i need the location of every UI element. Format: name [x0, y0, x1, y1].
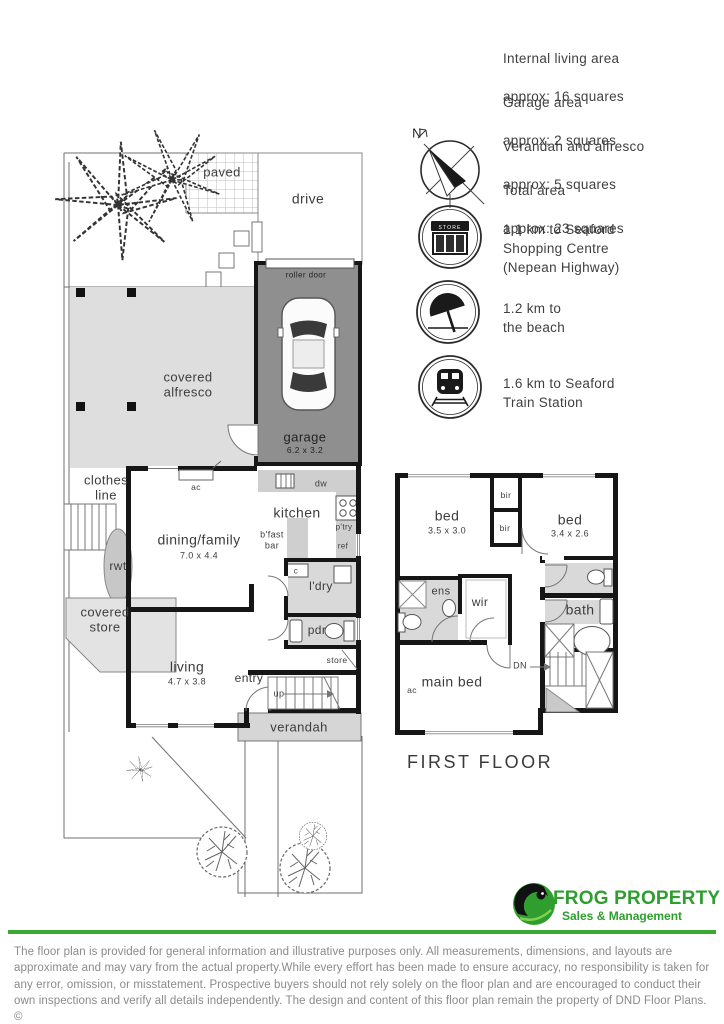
company-tagline: Sales & Management [562, 909, 682, 923]
room-label-covered-alfresco: covered alfresco [163, 370, 212, 401]
garden-tree-icon [299, 822, 327, 850]
label-bir2: bir [500, 523, 511, 533]
area-name: Internal living area [503, 49, 624, 68]
train-icon [419, 356, 481, 418]
label-dn: DN [513, 661, 527, 672]
disclaimer-text: The floor plan is provided for general i… [14, 944, 714, 1024]
garden-plant-icon [127, 757, 153, 782]
landmark-text: 1.1 km to Seaford Shopping Centre (Nepea… [503, 220, 620, 277]
landmark-text: 1.2 km to the beach [503, 299, 565, 337]
garden-tree-icon [197, 827, 247, 877]
label-ref: ref [338, 541, 349, 550]
drive-area [258, 153, 362, 264]
label-ac-first: ac [407, 685, 417, 695]
room-label-kitchen: kitchen [273, 505, 320, 522]
landmark-text: 1.6 km to Seaford Train Station [503, 374, 615, 412]
label-cupboard: c [294, 566, 298, 575]
floor-plan-page: STORE Internal living area approx: 16 sq… [0, 0, 724, 1024]
room-label-verandah: verandah [270, 719, 327, 734]
shop-icon: STORE [419, 206, 481, 268]
room-dims-dining-family: 7.0 x 4.4 [180, 551, 218, 562]
room-label-wir: wir [472, 595, 489, 609]
room-dims-garage: 6.2 x 3.2 [287, 445, 323, 455]
label-store-ground: store [327, 655, 348, 665]
room-label-paved: paved [203, 164, 240, 179]
area-name: Garage area [503, 93, 616, 112]
room-label-powder: pdr [308, 623, 327, 637]
frog-logo-icon [513, 883, 555, 925]
room-label-ensuite: ens [432, 586, 451, 599]
label-dw: dw [315, 479, 327, 490]
room-label-laundry: l'dry [309, 579, 333, 593]
label-clothes-line: clothes line [84, 473, 128, 504]
room-dims-bed2: 3.4 x 2.6 [551, 529, 589, 540]
area-name: Verandah and alfresco [503, 137, 644, 156]
stepping-stones [206, 231, 249, 287]
area-name: Total area [503, 181, 624, 200]
label-pantry: p'try [336, 522, 353, 531]
compass-icon [418, 129, 484, 208]
car-icon [278, 298, 339, 410]
beach-umbrella-icon [417, 281, 479, 343]
room-dims-living: 4.7 x 3.8 [168, 677, 206, 688]
room-label-living: living [170, 659, 204, 676]
room-label-bed2: bed [558, 512, 583, 529]
room-label-bath: bath [566, 602, 595, 619]
green-divider [8, 930, 716, 934]
room-label-drive: drive [292, 191, 324, 208]
svg-text:STORE: STORE [438, 225, 461, 231]
room-label-main-bed: main bed [422, 674, 483, 691]
company-name: FROG PROPERTY [553, 888, 720, 910]
room-label-dining-family: dining/family [157, 532, 240, 549]
label-ac-ground: ac [191, 482, 201, 492]
room-label-bed1: bed [435, 508, 460, 525]
label-bir1: bir [501, 490, 512, 500]
room-label-garage: garage [284, 429, 327, 444]
garden-tree-icon [280, 843, 330, 893]
room-label-covered-store: covered store [80, 605, 129, 636]
first-floor-title: FIRST FLOOR [407, 752, 553, 773]
label-up: up [274, 689, 285, 700]
compass-north-label: N [412, 125, 422, 140]
label-roller-door: roller door [286, 270, 326, 279]
room-dims-bed1: 3.5 x 3.0 [428, 526, 466, 537]
label-bfast-bar: b'fast bar [260, 529, 284, 550]
label-rwt: rwt [109, 559, 126, 573]
label-entry: entry [235, 671, 264, 685]
